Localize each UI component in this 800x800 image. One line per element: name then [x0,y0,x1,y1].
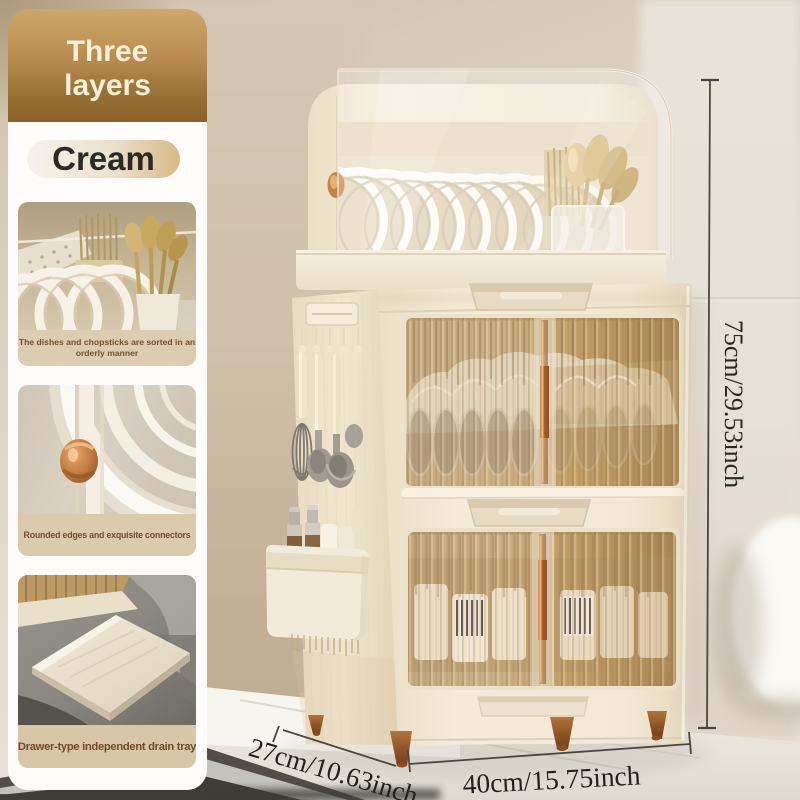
svg-text:75cm/29.53inch: 75cm/29.53inch [719,320,748,488]
